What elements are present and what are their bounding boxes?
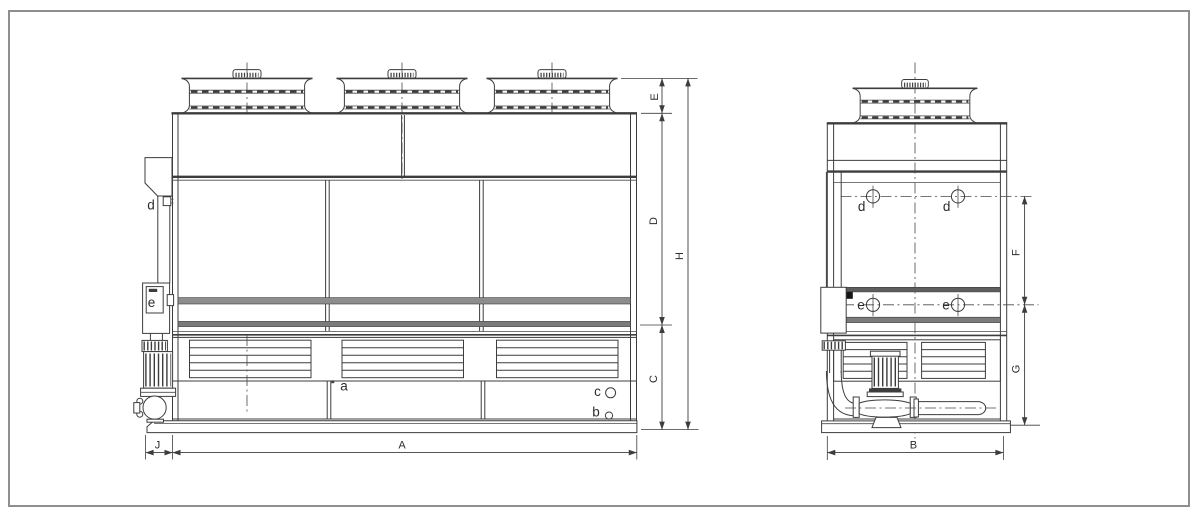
pump-volute-side [859, 400, 910, 417]
pipe-bracket [145, 158, 172, 196]
drawing-page: d e a c b E [0, 0, 1200, 520]
coil-section [173, 180, 637, 335]
side-valve-box [821, 287, 846, 333]
sensor-block [846, 292, 853, 299]
dim-label-G: G [1010, 365, 1022, 374]
dimension-G: G [1010, 305, 1040, 425]
connection-c: c [594, 384, 615, 399]
access-rail [178, 298, 631, 304]
dim-label-D: D [648, 217, 660, 225]
dimension-A: A [173, 435, 637, 460]
dim-label-F: F [1010, 249, 1022, 256]
side-louver-panel-2 [922, 342, 986, 378]
dimension-F: F [1010, 196, 1024, 304]
louver-panel-3 [497, 340, 619, 378]
side-inlet-connections-d: d d [841, 186, 1034, 214]
connection-b-port [605, 412, 612, 419]
spray-header-band [178, 321, 631, 326]
connection-label-e-left: e [857, 298, 865, 313]
pump-flange-left [853, 397, 859, 417]
technical-drawing: d e a c b E [0, 0, 1200, 520]
side-pipe-and-pump [821, 172, 997, 428]
dim-label-J: J [155, 439, 161, 451]
dim-label-E: E [649, 93, 661, 100]
side-view: d d e e [821, 63, 1040, 461]
dim-label-B: B [910, 439, 917, 451]
connection-label-e: e [148, 295, 156, 310]
connection-label-d-left: d [858, 199, 866, 214]
side-casing [827, 123, 1007, 421]
dim-label-A: A [398, 439, 406, 451]
connection-b: b [592, 405, 612, 420]
valve-box-slot [149, 289, 157, 292]
side-dark-band [834, 287, 1001, 292]
connection-d-flange [163, 197, 171, 206]
connection-label-d-right: d [943, 199, 951, 214]
connection-label-a: a [340, 379, 348, 394]
dim-label-H: H [674, 252, 686, 260]
side-basin-and-base [822, 419, 1011, 433]
dim-label-C: C [648, 375, 660, 383]
side-louver-section [834, 340, 1001, 381]
pump-volute [143, 396, 166, 419]
connection-c-port [606, 388, 616, 398]
louver-panel-2 [342, 340, 464, 378]
dimension-C: C [648, 325, 662, 430]
dimension-D: D [640, 113, 672, 325]
pump-motor-side [872, 356, 898, 388]
connection-a: a [331, 379, 348, 394]
louver-section [173, 335, 637, 414]
front-view: d e a c b E [134, 63, 699, 460]
connection-label-c: c [594, 384, 601, 399]
dimension-B: B [827, 436, 1003, 460]
basin [173, 381, 637, 419]
louver-panel-1 [190, 340, 312, 378]
connection-e-flange [167, 295, 173, 306]
side-outlet-connections-e: e e [843, 292, 1039, 316]
casing [172, 113, 638, 421]
connection-label-d: d [147, 198, 155, 213]
connection-a-marker [331, 380, 334, 383]
side-rail-band [834, 317, 1001, 322]
connection-label-b: b [592, 405, 600, 420]
connection-d: d [147, 198, 155, 213]
connection-label-e-right: e [942, 298, 950, 313]
dimension-J: J [146, 435, 173, 460]
connection-e: e [148, 295, 156, 310]
base-channel [147, 421, 637, 433]
dimension-E: E [621, 78, 698, 113]
fan-array [181, 63, 618, 181]
